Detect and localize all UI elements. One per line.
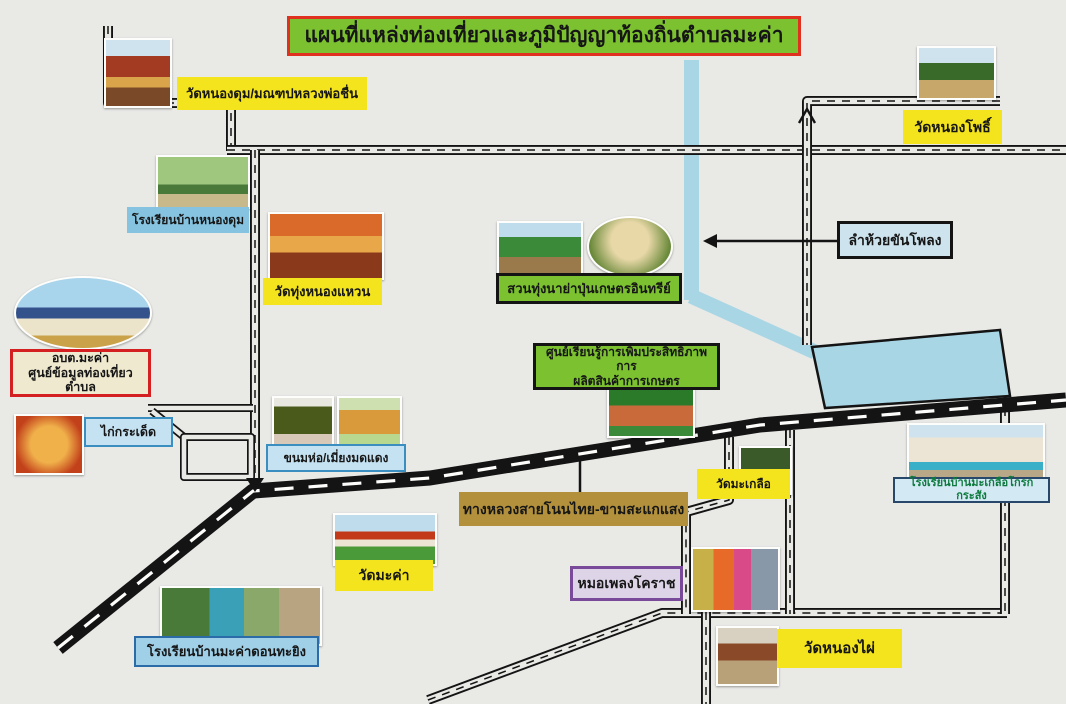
stream-pointer-arrow-icon [703, 234, 837, 248]
school-nong-dum-label: โรงเรียนบ้านหนองดุม [127, 207, 249, 233]
suan-thung-label: สวนทุ่งนาย่าปุ่นเกษตรอินทรีย์ [496, 273, 682, 304]
miang-mot-daeng-photo [337, 396, 402, 446]
learning-center-label-line1: ศูนย์เรียนรู้การเพิ่มประสิทธิภาพการ [536, 345, 717, 373]
map-canvas: แผนที่แหล่งท่องเที่ยวและภูมิปัญญาท้องถิ่… [0, 0, 1066, 704]
suan-thung-people-photo [587, 216, 673, 277]
obt-makha-label-line1: อบต.มะค่า [52, 351, 109, 366]
highway-label: ทางหลวงสายโนนไทย-ขามสะแกแสง [459, 492, 688, 526]
learning-center-label-line2: ผลิตสินค้าการเกษตร [573, 374, 679, 388]
khanom-ho-label: ขนมห่อ/เมี่ยงมดแดง [266, 444, 406, 472]
school-makluea-photo [907, 423, 1045, 483]
khanom-ho-photo [272, 396, 334, 446]
wat-nong-phai-photo [716, 626, 779, 686]
school-makluea-label: โรงเรียนบ้านมะเกลือโกรกกระสัง [893, 477, 1050, 503]
pond [812, 330, 1010, 408]
wat-thung-nong-waen-label: วัดทุ่งหนองแหวน [263, 278, 382, 305]
learning-center-label: ศูนย์เรียนรู้การเพิ่มประสิทธิภาพการ ผลิต… [533, 343, 720, 390]
wat-nong-phai-label: วัดหนองไผ่ [777, 629, 902, 668]
wat-nong-pho-label: วัดหนองโพธิ์ [903, 110, 1002, 144]
wat-thung-nong-waen-photo [268, 212, 384, 280]
map-title: แผนที่แหล่งท่องเที่ยวและภูมิปัญญาท้องถิ่… [287, 16, 801, 56]
wat-makluea-label: วัดมะเกลือ [697, 469, 790, 499]
wat-makha-photo [333, 513, 437, 566]
wat-nong-dum-photo [104, 38, 172, 108]
suan-thung-sign-photo [497, 221, 583, 275]
wat-nong-pho-photo [917, 46, 996, 100]
obt-makha-label: อบต.มะค่า ศูนย์ข้อมูลท่องเที่ยวตำบล [10, 349, 151, 397]
learning-center-photo [607, 388, 695, 438]
wat-nong-dum-label: วัดหนองดุม/มณฑปหลวงพ่อชื่น [177, 77, 367, 110]
obt-makha-label-line2: ศูนย์ข้อมูลท่องเที่ยวตำบล [13, 366, 148, 396]
kai-kradet-label: ไก่กระเด็ด [84, 417, 173, 447]
stream-vertical [684, 60, 699, 300]
lam-huai-label: ลำห้วยขันโพลง [837, 221, 953, 259]
wat-makha-label: วัดมะค่า [335, 560, 433, 591]
mo-phleng-label: หมอเพลงโคราช [570, 566, 683, 601]
school-makha-don-label: โรงเรียนบ้านมะค่าดอนทะยิง [134, 636, 319, 667]
kai-kradet-photo [14, 414, 84, 475]
school-nong-dum-photo [156, 155, 250, 209]
obt-makha-photo [14, 276, 152, 350]
mo-phleng-photo [691, 547, 780, 612]
